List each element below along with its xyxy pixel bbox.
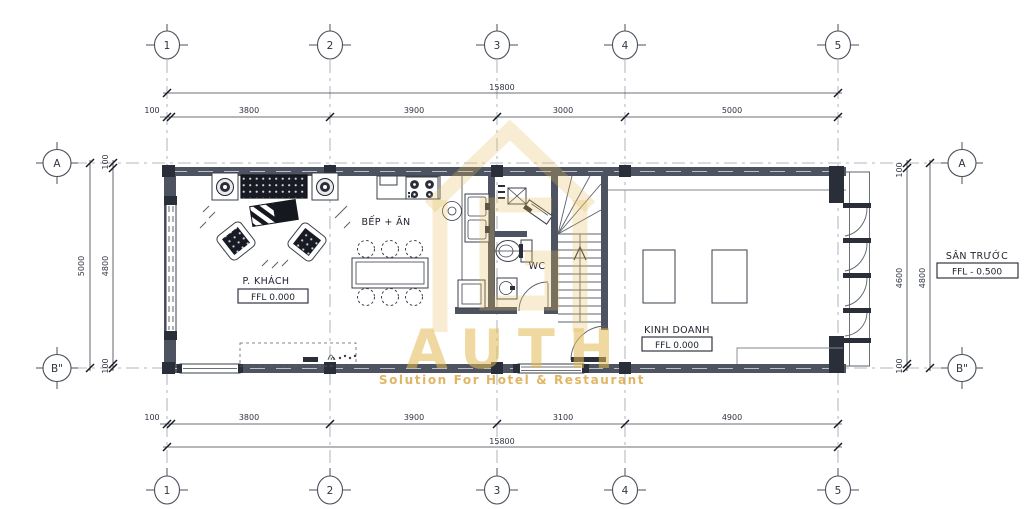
dim-bottom-seg-4: 4900 — [722, 413, 742, 422]
grid-col-4-top: 4 — [622, 40, 629, 52]
dim-left-seg-0: 100 — [101, 154, 110, 169]
side-table-right — [312, 173, 338, 200]
folding-door-front — [843, 172, 871, 366]
grid-row-a-left: A — [53, 158, 61, 170]
room-label-kitchen: BẾP + ĂN — [361, 216, 410, 228]
armchair-left — [215, 220, 257, 262]
ffl-business: FFL 0.000 — [655, 341, 699, 351]
window-left-wall — [164, 196, 177, 340]
grid-bubbles: 1 2 3 4 5 1 2 3 4 5 A B" A B" — [36, 24, 983, 504]
coffee-table — [250, 200, 299, 227]
dim-bottom-seg-3: 3100 — [553, 413, 573, 422]
dim-bottom-seg-0: 100 — [144, 413, 159, 422]
display-table-1 — [643, 250, 675, 303]
dim-top-seg-4: 5000 — [722, 106, 742, 115]
dim-left-overall: 5000 — [77, 256, 86, 276]
grid-row-b-left: B" — [51, 363, 63, 375]
window-bottom-left — [177, 364, 243, 373]
grid-col-1-top: 1 — [164, 40, 171, 52]
grid-row-a-right: A — [958, 158, 966, 170]
grid-col-2-top: 2 — [327, 40, 334, 52]
dim-left-seg-1: 4800 — [101, 256, 110, 276]
dim-right-seg-0: 100 — [895, 162, 904, 177]
floor-plan-canvas: 15800 100 3800 3900 3000 5000 100 3800 3… — [0, 0, 1024, 509]
side-table-left — [212, 173, 238, 200]
dim-right-seg-2: 100 — [895, 358, 904, 373]
dim-bottom-overall: 15800 — [489, 437, 514, 446]
dim-bottom-seg-1: 3800 — [239, 413, 259, 422]
dining-table — [352, 241, 428, 306]
dim-top-overall: 15800 — [489, 83, 514, 92]
dim-right-seg-1: 4600 — [895, 268, 904, 288]
console-decor — [240, 343, 356, 366]
front-step — [737, 348, 843, 364]
grid-col-3-bottom: 3 — [494, 485, 501, 497]
sofa — [241, 175, 307, 198]
dim-top-seg-2: 3900 — [404, 106, 424, 115]
grid-col-2-bottom: 2 — [327, 485, 334, 497]
watermark-tagline: Solution For Hotel & Restaurant — [379, 373, 645, 387]
dim-top-seg-3: 3000 — [553, 106, 573, 115]
floor-plan-drawing: 15800 100 3800 3900 3000 5000 100 3800 3… — [0, 0, 1024, 509]
armchair-right — [286, 221, 328, 263]
dim-right-overall: 4800 — [918, 268, 927, 288]
living-room-furniture — [200, 173, 356, 366]
room-label-business: KINH DOANH — [644, 325, 710, 336]
kitchen-furniture — [352, 176, 490, 308]
grid-col-4-bottom: 4 — [622, 485, 629, 497]
dim-bottom-seg-2: 3900 — [404, 413, 424, 422]
room-label-front-yard: SÂN TRƯỚC — [946, 250, 1008, 262]
grid-col-3-top: 3 — [494, 40, 501, 52]
grid-row-b-right: B" — [956, 363, 968, 375]
dim-top-seg-1: 3800 — [239, 106, 259, 115]
watermark-brand: AUTH — [406, 318, 628, 381]
dim-top-seg-0: 100 — [144, 106, 159, 115]
room-label-living: P. KHÁCH — [243, 275, 290, 287]
grid-col-5-bottom: 5 — [835, 485, 842, 497]
ffl-front-yard: FFL - 0.500 — [952, 268, 1002, 278]
dim-left-seg-2: 100 — [101, 358, 110, 373]
display-table-2 — [712, 250, 747, 303]
ffl-living: FFL 0.000 — [251, 293, 295, 303]
grid-col-5-top: 5 — [835, 40, 842, 52]
grid-col-1-bottom: 1 — [164, 485, 171, 497]
